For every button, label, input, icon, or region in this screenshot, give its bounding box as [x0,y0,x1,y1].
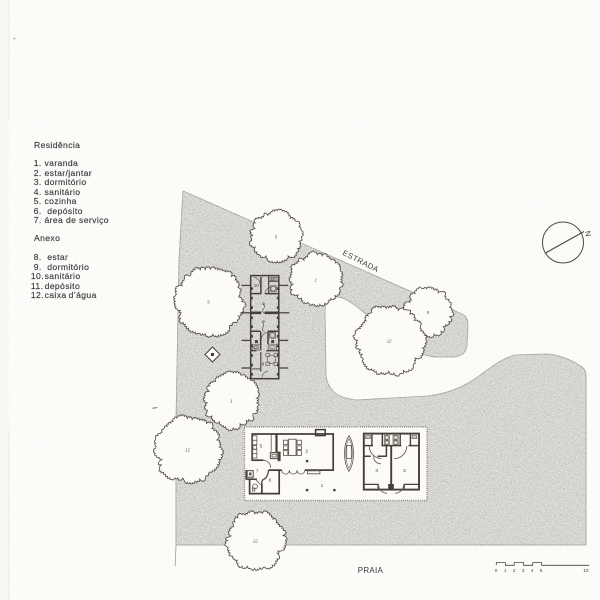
svg-text:3: 3 [375,468,378,474]
svg-text:1: 1 [315,278,317,283]
svg-text:12.: 12. [253,539,259,544]
svg-text:3: 3 [403,468,406,474]
svg-text:5: 5 [260,444,263,450]
svg-text:2: 2 [513,568,516,574]
svg-text:4: 4 [531,568,534,574]
svg-text:3: 3 [522,568,525,574]
svg-text:12: 12 [387,339,392,344]
svg-text:2: 2 [305,448,308,454]
svg-text:10: 10 [254,283,259,288]
svg-text:7: 7 [256,468,259,474]
svg-text:11: 11 [254,345,259,350]
svg-text:10: 10 [583,568,589,574]
svg-text:1: 1 [321,483,324,489]
svg-text:6: 6 [269,478,272,484]
svg-text:1: 1 [230,399,232,404]
svg-text:5: 5 [540,568,543,574]
svg-text:11: 11 [270,276,275,281]
svg-text:12: 12 [185,448,190,453]
svg-text:0: 0 [495,568,498,574]
svg-text:PRAIA: PRAIA [358,566,384,575]
svg-text:1: 1 [504,568,507,574]
